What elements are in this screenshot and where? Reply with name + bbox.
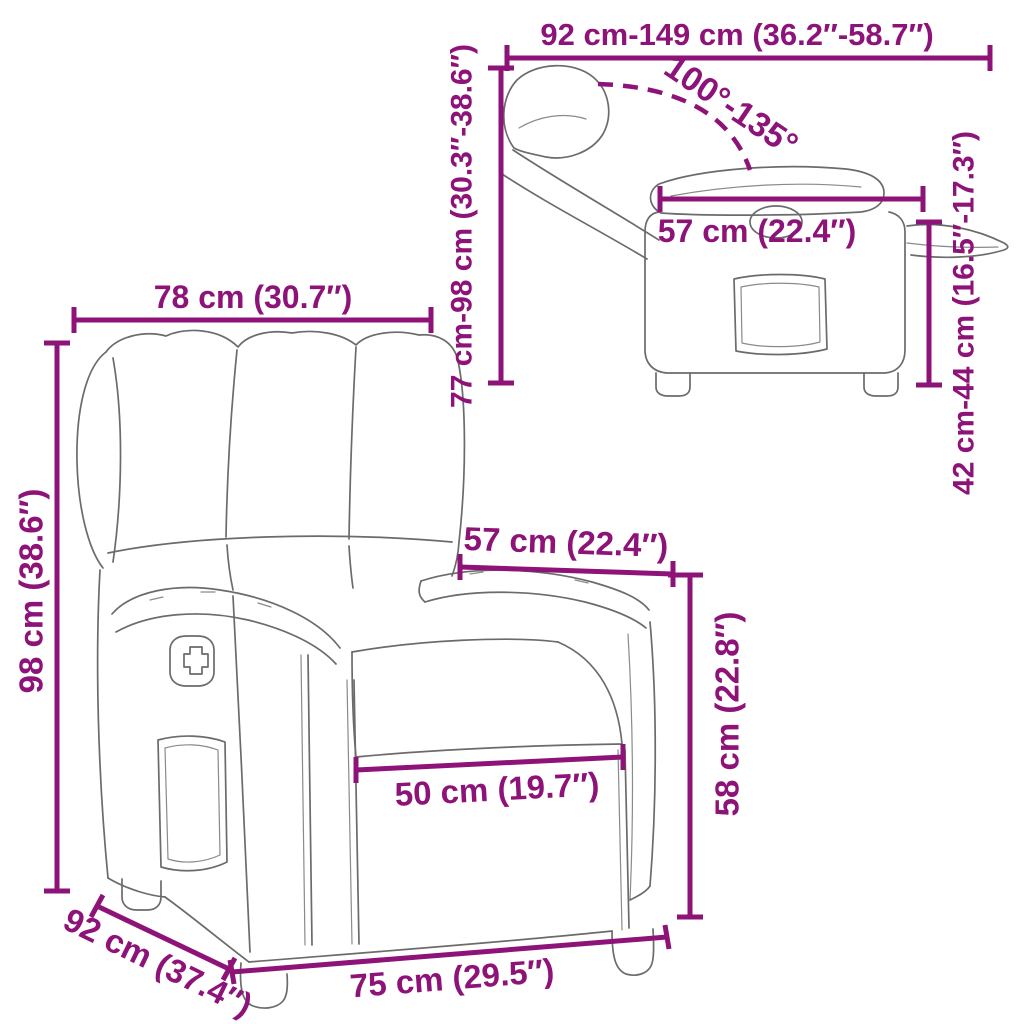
front-channel-seam-1-lower — [227, 545, 233, 590]
label-reclined-length: 92 cm-149 cm (36.2″-58.7″) — [540, 17, 933, 52]
side-foot-right — [864, 373, 898, 396]
front-armrest-column-edge — [233, 596, 250, 952]
front-armrest-column-seam-a — [301, 655, 305, 945]
front-armrest-column-seam-b — [308, 655, 312, 945]
label-side-seat-depth: 57 cm (22.4″) — [658, 213, 857, 249]
side-foot-left — [656, 373, 690, 396]
front-pocket-inner — [165, 745, 220, 862]
front-side-panel-outer — [98, 570, 108, 878]
front-footrest-right-edge-a — [618, 750, 622, 930]
side-backrest-band-inner — [502, 174, 647, 259]
dim-armrest-span: 57 cm (22.4″) — [460, 520, 703, 587]
label-seat-width: 50 cm (19.7″) — [394, 765, 600, 813]
front-right-outer-edge — [650, 622, 655, 886]
front-release-handle-cutout — [184, 647, 208, 674]
side-seat-pillow — [651, 167, 884, 215]
label-armrest-height: 58 cm (22.8″) — [709, 612, 746, 817]
front-channel-seam-1 — [226, 350, 237, 537]
front-seat-right — [558, 642, 622, 744]
front-left-wing-outer — [77, 352, 106, 568]
front-view-chair — [77, 331, 655, 1009]
front-left-armrest-pad-bottom — [116, 614, 336, 664]
dim-armrest-height: 58 cm (22.8″) — [677, 576, 746, 917]
front-front-right-foot — [612, 929, 654, 975]
front-left-armrest-pad-top — [112, 588, 340, 648]
front-footrest-left-edge-a — [347, 680, 352, 944]
dimension-diagram: 92 cm-149 cm (36.2″-58.7″) 77 cm-98 cm (… — [0, 0, 1024, 1024]
dim-recline-angle: 100°-135° — [598, 48, 805, 170]
side-headrest-seam — [519, 116, 586, 128]
label-recline-angle: 100°-135° — [657, 48, 804, 164]
dim-total-width: 78 cm (30.7″) — [74, 279, 431, 333]
side-pocket-inner — [741, 283, 820, 346]
front-channel-seam-2-lower — [349, 546, 353, 588]
front-footrest-right-edge-b — [625, 750, 629, 928]
front-right-armrest-pad-bottom — [425, 592, 646, 628]
dim-seat-height: 42 cm-44 cm (16.5″-17.3″) — [916, 131, 981, 495]
front-footrest-left-edge-b — [354, 680, 359, 944]
label-armrest-span: 57 cm (22.4″) — [463, 520, 669, 564]
front-side-panel-bottom — [108, 878, 165, 897]
dim-depth: 92 cm (37.4″) — [58, 895, 258, 1024]
front-right-bottom — [630, 886, 650, 900]
diagram-svg: 92 cm-149 cm (36.2″-58.7″) 77 cm-98 cm (… — [0, 0, 1024, 1024]
label-seat-height: 42 cm-44 cm (16.5″-17.3″) — [948, 131, 981, 495]
front-mid-seam — [108, 536, 452, 553]
label-total-height: 98 cm (38.6″) — [13, 489, 50, 694]
front-right-armrest-pad-edge — [419, 581, 425, 602]
label-back-height: 77 cm-98 cm (30.3″-38.6″) — [446, 44, 479, 408]
dim-total-height: 98 cm (38.6″) — [13, 343, 71, 891]
dim-reclined-length: 92 cm-149 cm (36.2″-58.7″) — [507, 17, 990, 71]
dim-base-width: 75 cm (29.5″) — [230, 925, 669, 1004]
front-seat-top — [352, 639, 558, 652]
front-right-inner-edge — [628, 634, 632, 900]
front-left-armrest-sketch — [150, 592, 271, 607]
side-seat-seam — [671, 184, 861, 196]
front-left-wing-seam — [113, 358, 121, 562]
dim-back-height: 77 cm-98 cm (30.3″-38.6″) — [446, 44, 515, 408]
front-seat-front-edge — [356, 744, 622, 757]
side-headrest — [504, 66, 609, 158]
front-back-left-foot — [122, 879, 161, 910]
side-pocket-outer — [734, 275, 827, 355]
label-total-width: 78 cm (30.7″) — [154, 279, 353, 315]
front-channel-seam-2 — [349, 347, 356, 539]
front-right-armrest-pad-top — [421, 570, 649, 610]
